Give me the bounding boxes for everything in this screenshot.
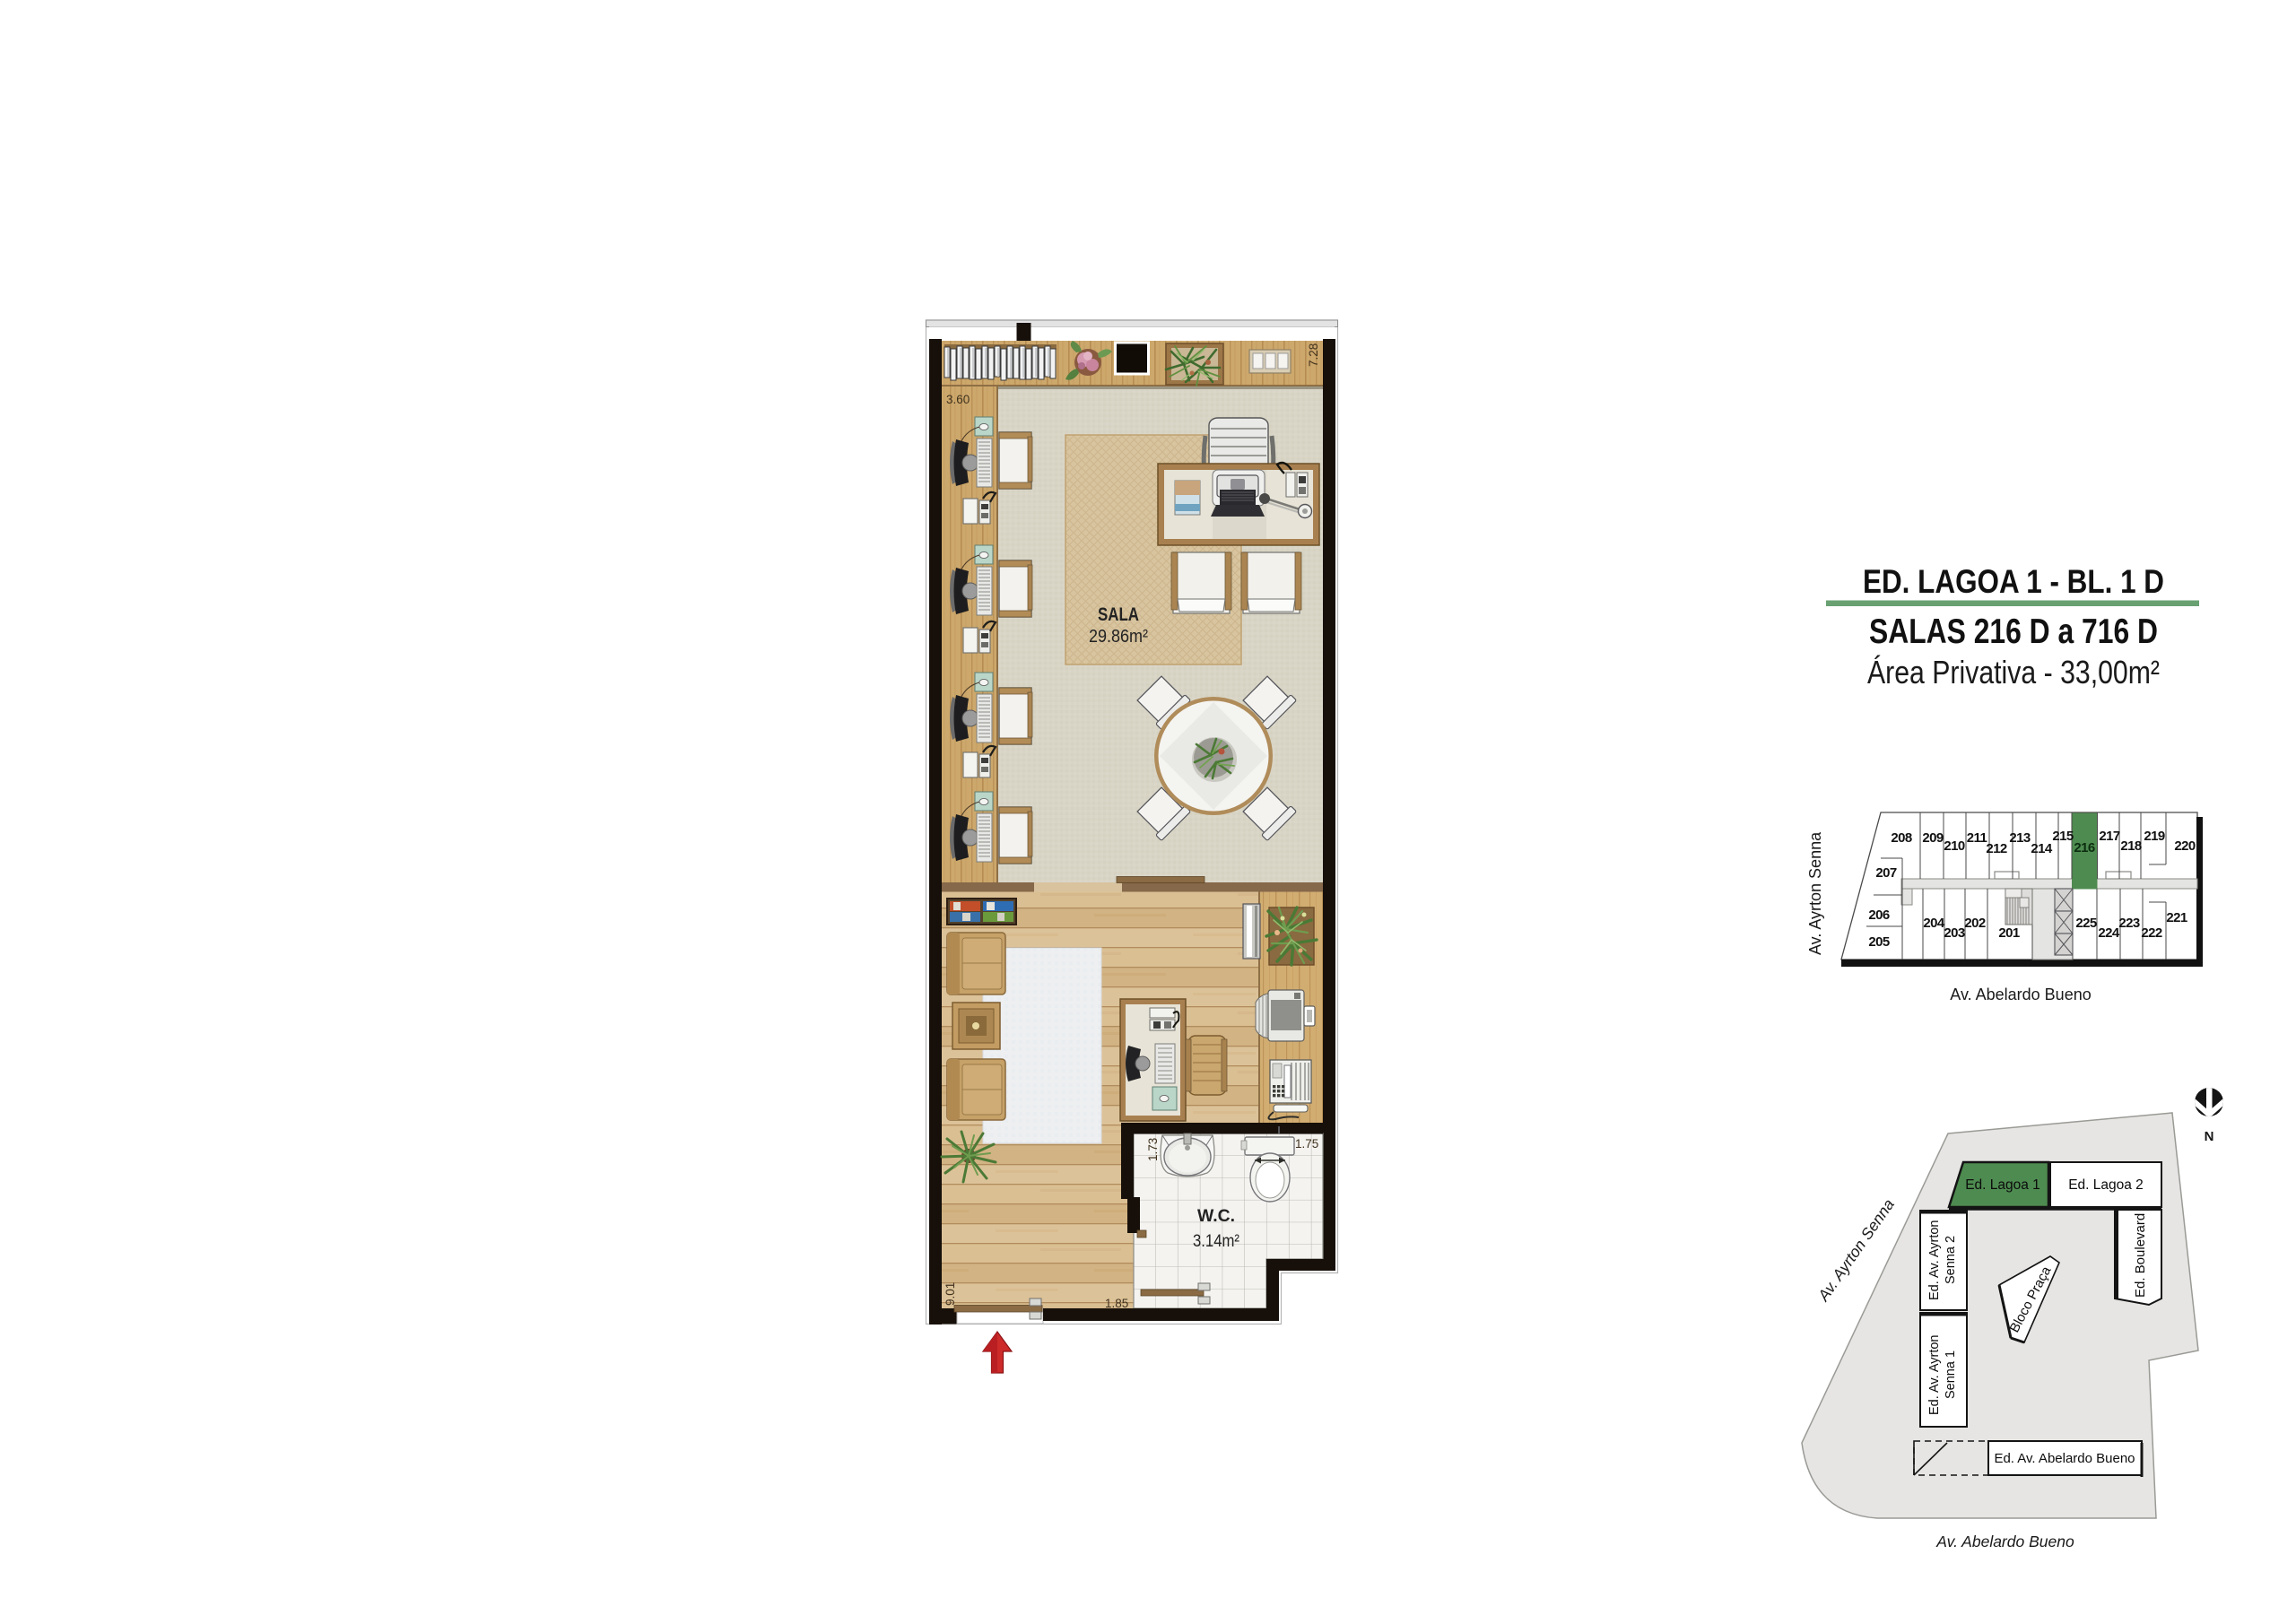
svg-text:208: 208 bbox=[1891, 830, 1911, 846]
svg-text:Senna 2: Senna 2 bbox=[1944, 1236, 1958, 1284]
svg-text:29.86m²: 29.86m² bbox=[1089, 627, 1148, 647]
svg-text:206: 206 bbox=[1868, 908, 1889, 923]
svg-text:215: 215 bbox=[2052, 829, 2073, 844]
svg-text:201: 201 bbox=[1998, 925, 2019, 941]
svg-text:212: 212 bbox=[1986, 841, 2006, 856]
svg-text:204: 204 bbox=[1923, 916, 1944, 931]
svg-text:Área Privativa - 33,00m²: Área Privativa - 33,00m² bbox=[1867, 654, 2160, 690]
svg-text:205: 205 bbox=[1868, 934, 1889, 950]
svg-text:217: 217 bbox=[2099, 829, 2119, 844]
svg-text:209: 209 bbox=[1922, 830, 1943, 846]
svg-text:SALAS 216 D a 716 D: SALAS 216 D a 716 D bbox=[1869, 612, 2158, 651]
svg-text:220: 220 bbox=[2174, 838, 2195, 854]
svg-text:Ed. Av. Abelardo Bueno: Ed. Av. Abelardo Bueno bbox=[1994, 1451, 2135, 1466]
svg-text:202: 202 bbox=[1964, 916, 1985, 931]
svg-text:223: 223 bbox=[2118, 916, 2139, 931]
svg-text:SALA: SALA bbox=[1098, 604, 1139, 625]
svg-text:Av. Ayrton Senna: Av. Ayrton Senna bbox=[1806, 831, 1824, 955]
svg-text:1.73: 1.73 bbox=[1146, 1138, 1160, 1161]
svg-text:216: 216 bbox=[2074, 840, 2094, 855]
svg-text:221: 221 bbox=[2166, 910, 2187, 925]
svg-text:Av. Abelardo Bueno: Av. Abelardo Bueno bbox=[1950, 986, 2091, 1003]
svg-text:N: N bbox=[2205, 1129, 2214, 1144]
svg-text:Senna 1: Senna 1 bbox=[1944, 1350, 1958, 1399]
svg-text:W.C.: W.C. bbox=[1197, 1206, 1235, 1226]
svg-text:1.85: 1.85 bbox=[1105, 1297, 1128, 1310]
svg-text:3.60: 3.60 bbox=[946, 393, 970, 406]
svg-text:Ed. Av. Ayrton: Ed. Av. Ayrton bbox=[1927, 1220, 1942, 1300]
svg-text:225: 225 bbox=[2075, 916, 2096, 931]
svg-text:Av. Abelardo Bueno: Av. Abelardo Bueno bbox=[1935, 1533, 2074, 1550]
svg-text:Ed. Av. Ayrton: Ed. Av. Ayrton bbox=[1927, 1335, 1942, 1415]
svg-text:222: 222 bbox=[2141, 925, 2161, 941]
svg-text:Ed. Boulevard: Ed. Boulevard bbox=[2133, 1213, 2148, 1298]
svg-text:219: 219 bbox=[2144, 829, 2164, 844]
svg-text:211: 211 bbox=[1967, 830, 1987, 846]
svg-text:Ed. Lagoa 1: Ed. Lagoa 1 bbox=[1965, 1177, 2040, 1193]
svg-text:213: 213 bbox=[2009, 830, 2030, 846]
svg-text:ED. LAGOA 1 - BL. 1 D: ED. LAGOA 1 - BL. 1 D bbox=[1863, 563, 2164, 600]
svg-text:3.14m²: 3.14m² bbox=[1193, 1232, 1239, 1251]
svg-text:Ed. Lagoa 2: Ed. Lagoa 2 bbox=[2068, 1177, 2144, 1193]
svg-text:203: 203 bbox=[1944, 925, 1964, 941]
svg-text:210: 210 bbox=[1944, 838, 1964, 854]
svg-text:207: 207 bbox=[1875, 865, 1896, 881]
svg-text:214: 214 bbox=[2031, 841, 2052, 856]
svg-text:224: 224 bbox=[2098, 925, 2119, 941]
svg-text:7.28: 7.28 bbox=[1307, 343, 1320, 367]
svg-text:218: 218 bbox=[2120, 838, 2141, 854]
svg-text:1.75: 1.75 bbox=[1295, 1137, 1318, 1151]
svg-text:9.01: 9.01 bbox=[944, 1282, 957, 1306]
